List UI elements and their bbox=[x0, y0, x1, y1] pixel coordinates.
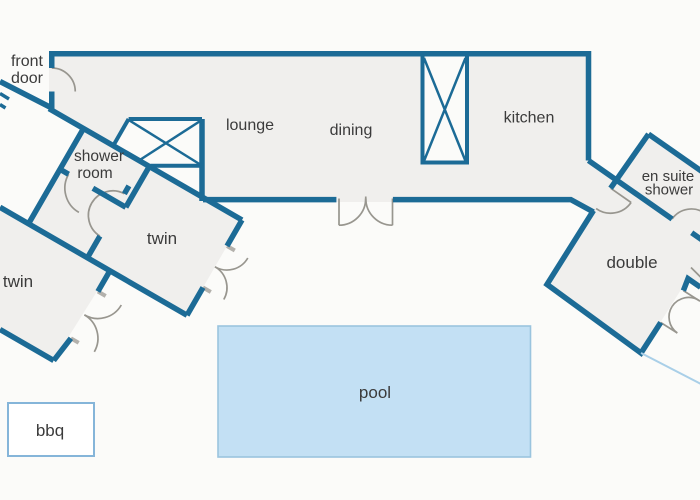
svg-text:door: door bbox=[11, 70, 44, 87]
svg-text:dining: dining bbox=[330, 122, 373, 139]
svg-text:bbq: bbq bbox=[36, 421, 64, 440]
svg-text:lounge: lounge bbox=[226, 117, 274, 134]
svg-text:shower: shower bbox=[645, 182, 693, 199]
svg-text:kitchen: kitchen bbox=[504, 110, 555, 127]
svg-text:room: room bbox=[77, 165, 112, 182]
svg-text:double: double bbox=[606, 253, 657, 272]
svg-text:twin: twin bbox=[147, 229, 177, 248]
svg-text:twin: twin bbox=[3, 272, 33, 291]
svg-text:shower: shower bbox=[74, 148, 124, 165]
svg-text:pool: pool bbox=[359, 383, 391, 402]
svg-text:front: front bbox=[11, 53, 44, 70]
